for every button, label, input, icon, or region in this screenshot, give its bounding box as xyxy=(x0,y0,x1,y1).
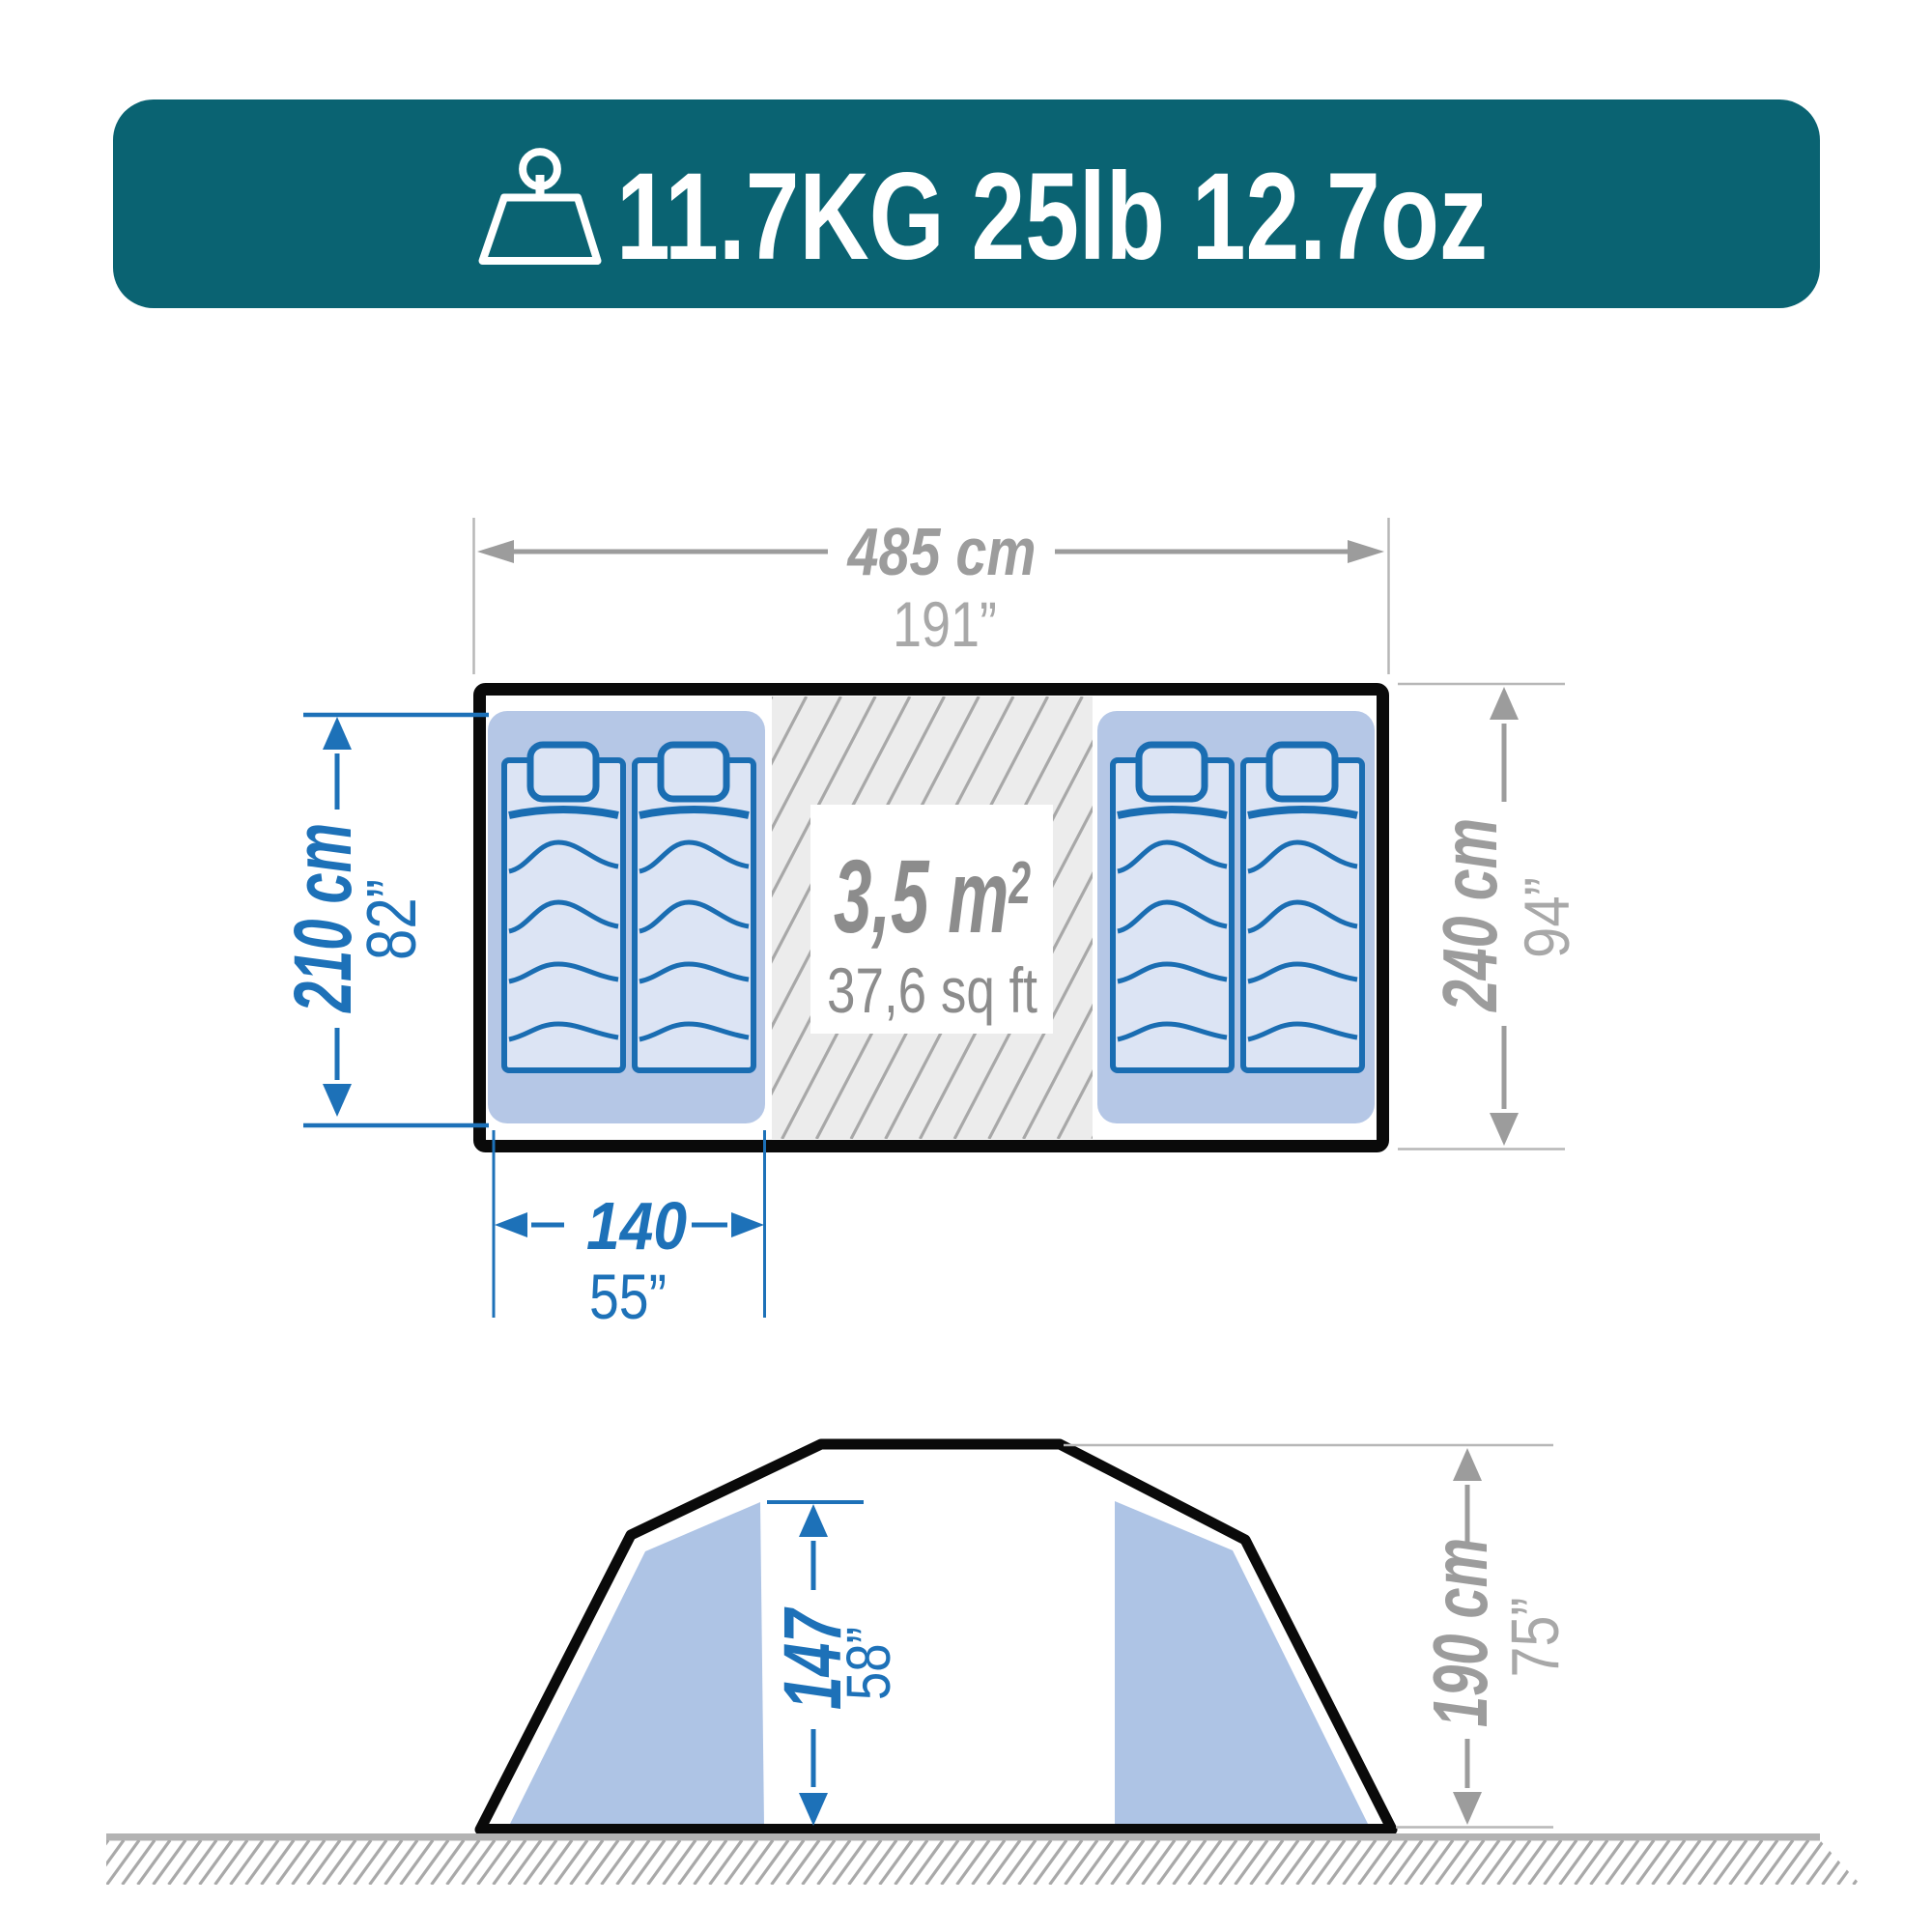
svg-text:58”: 58” xyxy=(834,1627,903,1700)
svg-text:94”: 94” xyxy=(1511,877,1582,958)
svg-text:37,6 sq ft: 37,6 sq ft xyxy=(827,954,1037,1026)
svg-text:82”: 82” xyxy=(354,879,431,960)
svg-text:11.7KG 25lb 12.7oz: 11.7KG 25lb 12.7oz xyxy=(616,148,1488,286)
svg-text:191”: 191” xyxy=(893,588,997,660)
svg-text:55”: 55” xyxy=(589,1261,667,1332)
svg-text:485 cm: 485 cm xyxy=(846,514,1037,589)
svg-text:75”: 75” xyxy=(1497,1598,1573,1678)
svg-text:190 cm: 190 cm xyxy=(1417,1538,1503,1727)
svg-text:240 cm: 240 cm xyxy=(1427,818,1513,1012)
svg-text:140: 140 xyxy=(586,1188,687,1264)
svg-text:3,5 m2: 3,5 m2 xyxy=(834,838,1031,954)
